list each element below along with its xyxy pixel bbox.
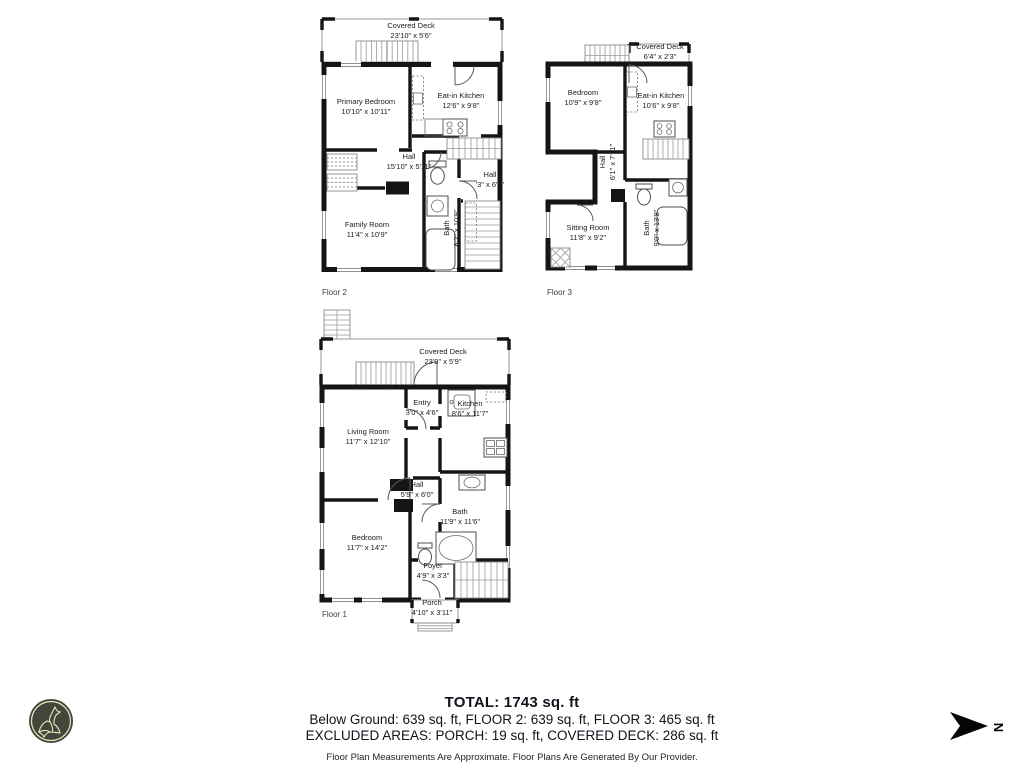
floor-3-window-seat — [551, 248, 570, 267]
disclaimer-text: Floor Plan Measurements Are Approximate.… — [0, 752, 1024, 763]
room-label-bath: Bath9'0" x 13'8" — [642, 210, 662, 247]
floor-2-deck-stairs — [356, 41, 418, 62]
excluded-areas-text: EXCLUDED AREAS: PORCH: 19 sq. ft, COVERE… — [0, 728, 1024, 743]
room-label-family-room: Family Room11'4" x 10'9" — [345, 220, 389, 240]
room-label-eat-in-kitchen: Eat-in Kitchen10'6" x 9'8" — [638, 91, 685, 111]
room-label-hall: Hall6'1" x 7'11" — [598, 144, 618, 180]
room-label-bath: Bath11'9" x 11'6" — [440, 507, 480, 527]
floor-1-tag: Floor 1 — [322, 610, 347, 619]
floor-areas-text: Below Ground: 639 sq. ft, FLOOR 2: 639 s… — [0, 712, 1024, 727]
room-label-covered-deck: Covered Deck23'10" x 5'6" — [387, 21, 435, 41]
room-label-kitchen: Kitchen8'6" x 11'7" — [452, 399, 488, 419]
floor-1-exterior-stairs — [324, 310, 350, 339]
room-label-hall-2: Hall'3" x 6'2" — [476, 170, 505, 190]
room-label-eat-in-kitchen: Eat-in Kitchen12'6" x 9'8" — [438, 91, 485, 111]
floorplan-page: Covered Deck23'10" x 5'6" Primary Bedroo… — [0, 0, 1024, 768]
room-label-sitting-room: Sitting Room11'8" x 9'2" — [567, 223, 610, 243]
floor-2-tag: Floor 2 — [322, 288, 347, 297]
floor-2-closets — [327, 154, 357, 191]
room-label-foyer: Foyer4'9" x 3'3" — [417, 561, 450, 581]
room-label-primary-bedroom: Primary Bedroom10'10" x 10'11" — [337, 97, 395, 117]
floor-1-drawing — [318, 308, 512, 632]
stove-fixture — [654, 121, 675, 137]
floor-2-plan: Covered Deck23'10" x 5'6" Primary Bedroo… — [319, 15, 505, 277]
floor-3-stairs — [643, 139, 689, 159]
room-label-bedroom: Bedroom11'7" x 14'2" — [347, 533, 388, 553]
room-label-bath: Bath6'2" x 10'9" — [442, 210, 462, 247]
floor-3-plan: Covered Deck6'4" x 2'3" Bedroom10'9" x 9… — [545, 40, 693, 277]
north-arrow: N — [946, 708, 1012, 752]
tub-fixture — [436, 532, 476, 564]
floor-3-tag: Floor 3 — [547, 288, 572, 297]
room-label-living-room: Living Room11'7" x 12'10" — [346, 427, 391, 447]
room-label-entry: Entry3'0" x 4'6" — [406, 398, 439, 418]
floor-1-stairwell — [455, 562, 508, 598]
room-label-hall: Hall15'10" x 5'11" — [387, 152, 432, 172]
room-label-porch: Porch4'10" x 3'11" — [412, 598, 453, 618]
floor-1-plan: Covered Deck23'9" x 5'9" Entry3'0" x 4'6… — [318, 308, 512, 632]
toilet-fixture — [418, 543, 432, 548]
total-area-text: TOTAL: 1743 sq. ft — [0, 694, 1024, 711]
room-label-covered-deck: Covered Deck6'4" x 2'3" — [636, 42, 684, 62]
floor-1-deck-stairs — [356, 362, 414, 385]
floor-1-deck — [321, 339, 509, 385]
room-label-bedroom: Bedroom10'9" x 9'8" — [565, 88, 602, 108]
stove-fixture — [443, 119, 467, 136]
room-label-covered-deck: Covered Deck23'9" x 5'9" — [419, 347, 467, 367]
provider-logo — [27, 697, 75, 745]
area-summary: TOTAL: 1743 sq. ft Below Ground: 639 sq.… — [0, 694, 1024, 763]
toilet-fixture — [636, 184, 652, 189]
north-label: N — [991, 723, 1006, 732]
room-label-hall: Hall5'9" x 6'0" — [401, 480, 434, 500]
wolf-logo-icon — [27, 697, 75, 745]
sink-fixture — [669, 179, 687, 196]
